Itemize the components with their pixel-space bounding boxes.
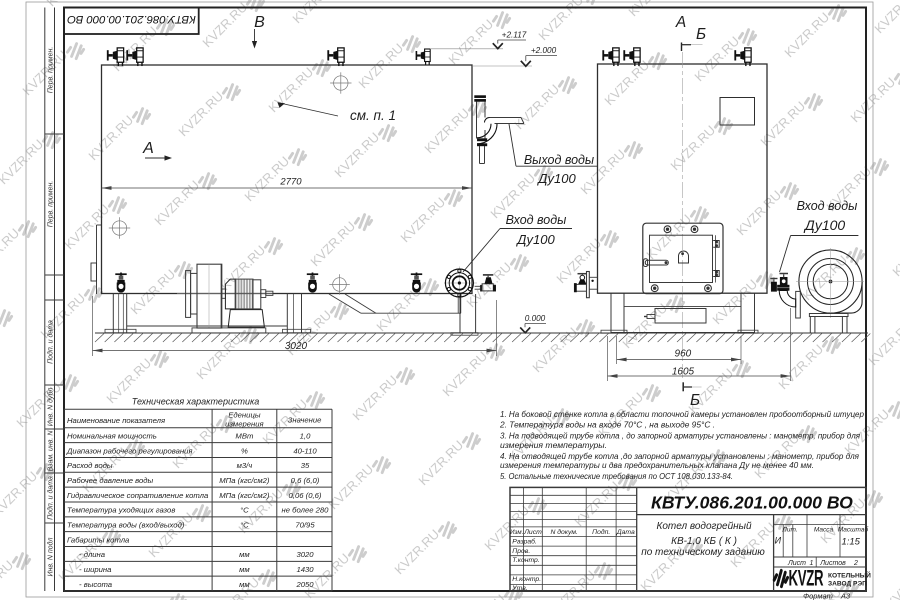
svg-text:Дата: Дата <box>616 529 635 536</box>
svg-text:- высота: - высота <box>79 580 113 589</box>
svg-text:5. Остальные технические треб: 5. Остальные технические требования по О… <box>500 471 733 481</box>
svg-text:Инв. N дубл: Инв. N дубл <box>47 388 55 427</box>
svg-text:°С: °С <box>240 506 249 515</box>
svg-text:Вход воды: Вход воды <box>506 213 567 227</box>
svg-text:Б: Б <box>690 392 700 409</box>
svg-text:Габариты котла: Габариты котла <box>67 535 130 544</box>
svg-text:+2.000: +2.000 <box>531 46 557 55</box>
svg-text:Подп. и дата: Подп. и дата <box>47 476 55 520</box>
svg-text:м3/ч: м3/ч <box>237 461 253 470</box>
svg-text:мм: мм <box>239 550 250 559</box>
svg-text:1:15: 1:15 <box>841 536 860 547</box>
svg-text:Инв. N подл: Инв. N подл <box>47 537 55 576</box>
svg-text:Еденицы: Еденицы <box>228 411 261 420</box>
svg-text:КВ-1,0 КБ ( К ): КВ-1,0 КБ ( К ) <box>671 536 737 547</box>
svg-text:А: А <box>675 14 686 31</box>
svg-text:70/95: 70/95 <box>295 521 315 530</box>
svg-text:КВТУ.086.201.00.000 ВО: КВТУ.086.201.00.000 ВО <box>651 493 853 513</box>
svg-text:Котел водогрейный: Котел водогрейный <box>656 521 752 532</box>
svg-text:Утв.: Утв. <box>511 585 528 592</box>
svg-text:3020: 3020 <box>285 341 308 352</box>
svg-text:Гидравлическое сопративление к: Гидравлическое сопративление котла <box>67 491 209 500</box>
svg-text:Перв. примен.: Перв. примен. <box>48 47 55 94</box>
svg-text:Вход воды: Вход воды <box>797 199 858 213</box>
svg-text:40-110: 40-110 <box>293 446 317 455</box>
svg-text:Значение: Значение <box>288 416 322 425</box>
svg-text:Подп. и дата: Подп. и дата <box>47 320 55 364</box>
svg-text:Лист: Лист <box>523 529 542 536</box>
svg-text:°С: °С <box>240 521 249 530</box>
svg-text:Б: Б <box>696 26 706 43</box>
svg-text:1. На боковой стенке котла в: 1. На боковой стенке котла в области топ… <box>500 409 864 419</box>
svg-text:0,06 (0,6): 0,06 (0,6) <box>289 491 322 500</box>
svg-text:МПа (кгс/см2): МПа (кгс/см2) <box>219 476 270 485</box>
svg-text:960: 960 <box>675 349 692 360</box>
svg-text:МПа (кгс/см2): МПа (кгс/см2) <box>219 491 270 500</box>
svg-text:35: 35 <box>301 461 310 470</box>
svg-text:измерения температуры.: измерения температуры. <box>500 440 607 450</box>
svg-text:И: И <box>775 536 782 546</box>
svg-text:Рабочее давление воды: Рабочее давление воды <box>67 476 153 485</box>
svg-text:мм: мм <box>239 565 250 574</box>
svg-text:Лит.: Лит. <box>781 527 797 534</box>
svg-text:1605: 1605 <box>672 367 695 378</box>
svg-text:Формат: Формат <box>803 591 833 600</box>
svg-text:2050: 2050 <box>295 580 314 589</box>
svg-text:Пров.: Пров. <box>512 548 530 555</box>
svg-text:KVZR: KVZR <box>789 566 824 590</box>
svg-text:Масштаб: Масштаб <box>838 526 869 534</box>
svg-text:Ду100: Ду100 <box>803 217 846 233</box>
svg-text:В: В <box>254 14 265 31</box>
svg-text:Диапазон рабочего регулировани: Диапазон рабочего регулирования <box>66 446 193 455</box>
svg-text:А: А <box>142 140 154 157</box>
svg-text:Листов: Листов <box>819 560 846 567</box>
svg-text:- ширина: - ширина <box>79 565 112 574</box>
svg-text:2: 2 <box>853 560 858 567</box>
svg-text:Ду100: Ду100 <box>536 171 576 186</box>
svg-text:КВТУ.086.201.00.000 ВО: КВТУ.086.201.00.000 ВО <box>67 13 196 25</box>
svg-text:Подп.: Подп. <box>592 528 610 536</box>
svg-text:Наименование показателя: Наименование показателя <box>67 416 165 425</box>
svg-text:Перв. примен.: Перв. примен. <box>48 181 55 228</box>
svg-text:мм: мм <box>239 580 250 589</box>
svg-text:МВт: МВт <box>235 432 254 441</box>
svg-text:Номинальная мощность: Номинальная мощность <box>67 432 157 441</box>
svg-text:измерения: измерения <box>225 419 263 428</box>
svg-text:Т.контр.: Т.контр. <box>512 557 540 564</box>
svg-text:Выход воды: Выход воды <box>524 153 594 167</box>
svg-text:2770: 2770 <box>279 177 302 188</box>
svg-text:Разраб.: Разраб. <box>512 538 537 546</box>
svg-text:N докум.: N докум. <box>550 528 578 536</box>
svg-text:ЗАВОД РЭП: ЗАВОД РЭП <box>828 581 867 588</box>
svg-text:Техническая характеристика: Техническая характеристика <box>132 397 259 407</box>
svg-text:0.000: 0.000 <box>525 314 546 323</box>
svg-text:Температура воды (вход/выход): Температура воды (вход/выход) <box>67 521 185 530</box>
svg-text:- длина: - длина <box>79 550 106 559</box>
svg-text:%: % <box>241 446 248 455</box>
svg-text:Взам. инв. N: Взам. инв. N <box>48 430 55 472</box>
svg-text:Температура уходящих газов: Температура уходящих газов <box>67 506 175 515</box>
svg-text:3. На подводящей трубе котла: 3. На подводящей трубе котла , до запорн… <box>500 430 860 440</box>
svg-text:А3: А3 <box>840 591 851 600</box>
svg-text:Расход воды: Расход воды <box>67 461 113 470</box>
svg-text:по техническому заданию: по техническому заданию <box>641 547 765 558</box>
svg-text:КОТЕЛЬНЫЙ: КОТЕЛЬНЫЙ <box>828 571 871 580</box>
svg-text:+2.117: +2.117 <box>502 31 527 40</box>
svg-text:1430: 1430 <box>296 565 314 574</box>
svg-text:Ду100: Ду100 <box>515 232 555 247</box>
svg-text:Изм.: Изм. <box>510 529 523 536</box>
svg-text:2. Температура воды на входе: 2. Температура воды на входе 70°С , на в… <box>499 420 715 430</box>
svg-text:Масса: Масса <box>814 527 834 534</box>
svg-text:см. п. 1: см. п. 1 <box>350 108 396 123</box>
svg-text:измерения температуры и два пр: измерения температуры и два предохраните… <box>500 460 814 470</box>
svg-text:Н.контр.: Н.контр. <box>512 576 541 583</box>
svg-text:1,0: 1,0 <box>300 432 311 441</box>
svg-text:0,6 (6,0): 0,6 (6,0) <box>291 476 320 485</box>
svg-text:не более 280: не более 280 <box>282 506 330 515</box>
svg-text:3020: 3020 <box>296 550 314 559</box>
